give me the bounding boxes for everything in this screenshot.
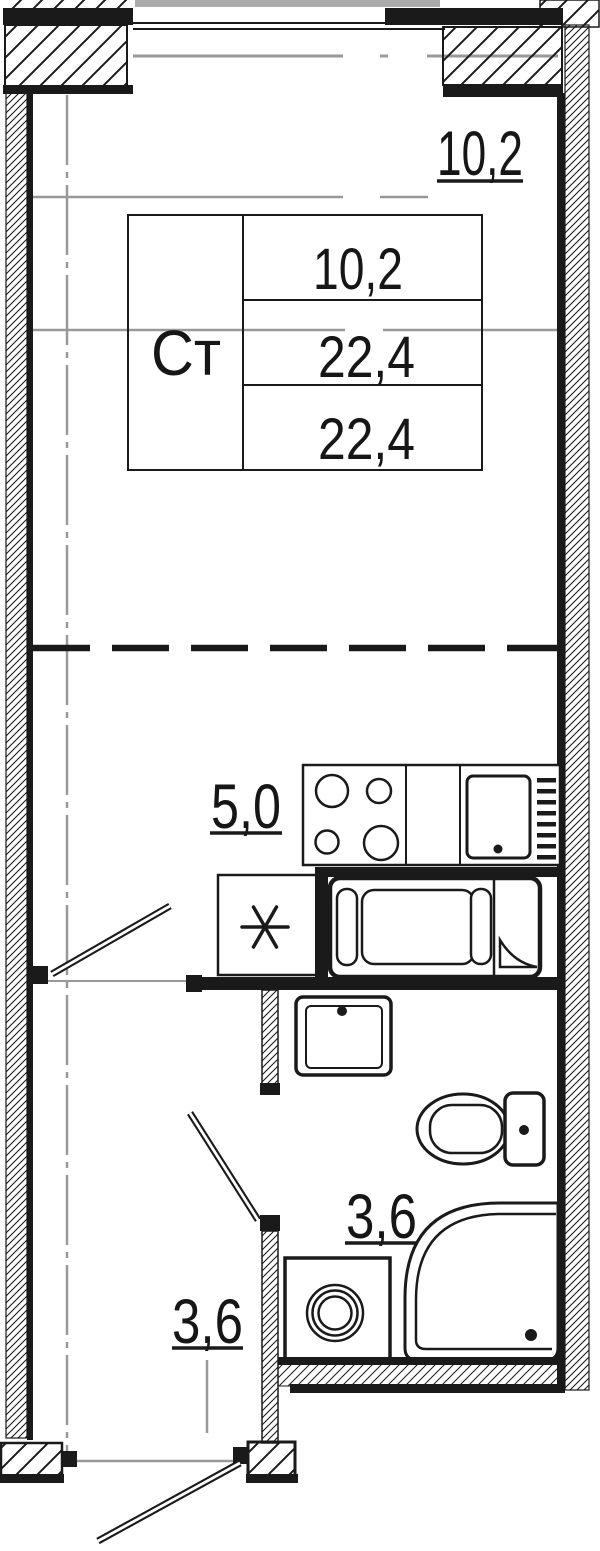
- asterisk-appliance-spot: [218, 875, 318, 975]
- entrance-door-leaf: [98, 1463, 240, 1541]
- table-row-3-value: 22,4: [318, 407, 415, 472]
- floor-plan-drawing: Ст 10,2 22,4 22,4: [0, 0, 600, 1551]
- room-door-leaf: [52, 906, 170, 974]
- lintel-right: [385, 8, 563, 25]
- pier-right-bar: [443, 84, 563, 97]
- wall-left: [0, 88, 64, 1483]
- entrance-door-stop: [62, 1451, 77, 1467]
- table-row-1-value: 10,2: [313, 237, 403, 302]
- entrance-door-hinge: [233, 1447, 249, 1464]
- lintel-left: [3, 8, 133, 25]
- exterior-band: [135, 0, 440, 7]
- wall-right: [557, 25, 589, 1390]
- sink-icon: [296, 997, 391, 1075]
- entrance-doorway: [62, 1442, 298, 1483]
- unit-type-label: Ст: [151, 317, 221, 389]
- pier-right: [443, 27, 562, 85]
- wall-cut-top-left: [3, 0, 133, 8]
- floor-plan: Ст 10,2 22,4 22,4: [0, 0, 600, 1551]
- bathroom-door-leaf: [190, 1113, 258, 1220]
- unit-info-table: Ст 10,2 22,4 22,4: [128, 215, 482, 472]
- bathroom-partition: [260, 990, 280, 1443]
- living-area-label: 10,2: [437, 119, 523, 189]
- fridge-icon: [467, 776, 530, 858]
- bathroom-bottom-wall: [278, 1357, 565, 1393]
- pier-left: [5, 25, 127, 87]
- shower-cabin-icon: [405, 1203, 558, 1360]
- toilet-icon: [417, 1093, 544, 1165]
- bathtub-icon: [330, 878, 540, 977]
- table-row-2-value: 22,4: [318, 325, 415, 390]
- room-door-hinge: [33, 966, 48, 984]
- washing-machine-icon: [285, 1258, 390, 1362]
